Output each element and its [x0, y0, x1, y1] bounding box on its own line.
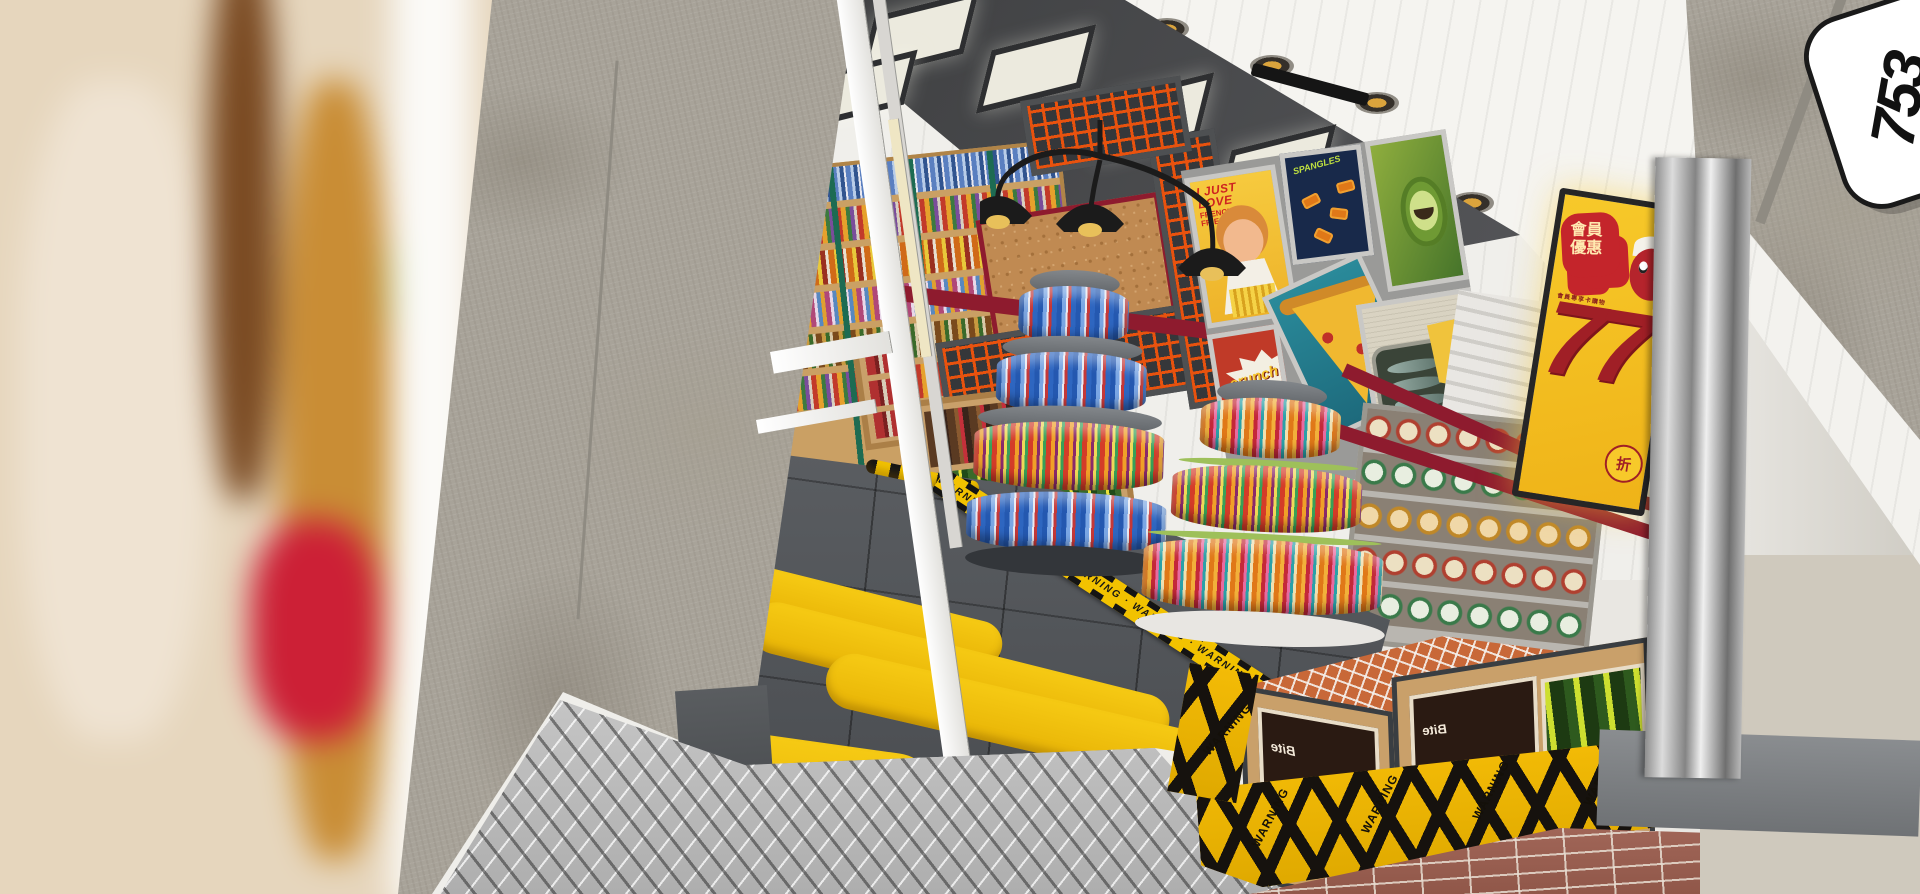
- chocolate-brand-label: Bite: [1422, 721, 1447, 738]
- lightbox-headline: 會員優惠: [1570, 222, 1607, 259]
- lightbox-discount-unit: 折: [1615, 452, 1633, 475]
- blur-blob: [280, 80, 390, 860]
- mascot-eye: [1638, 261, 1649, 274]
- can-tier: [973, 419, 1165, 494]
- stainless-column: [1645, 157, 1752, 779]
- can-tier: [1170, 461, 1363, 537]
- candy-piece: [1329, 207, 1348, 220]
- store-render-scene: I JUST LOVE FRENCHFRIES SPANGLES cr: [0, 0, 1920, 894]
- blur-blob: [20, 80, 210, 740]
- can-tier: [1199, 395, 1342, 462]
- red-cloud-badge: 會員優惠: [1560, 211, 1621, 278]
- lightbox-number: 77: [1535, 278, 1652, 411]
- chocolate-brand-label: Bite: [1271, 738, 1296, 759]
- blur-blob: [250, 520, 380, 740]
- candy-piece: [1336, 179, 1356, 194]
- curb-warning-text: WARNING: [1249, 785, 1292, 849]
- poster-candy: SPANGLES: [1279, 144, 1374, 265]
- candy-piece: [1313, 227, 1334, 245]
- storefront-logo-text: 753: [1857, 49, 1920, 151]
- curb-warning-text: WARNING: [1470, 758, 1513, 822]
- poster-title: SPANGLES: [1284, 148, 1341, 178]
- candy-piece: [1301, 192, 1322, 210]
- blur-blob: [208, 0, 278, 500]
- curb-warning-text: WARNING: [1358, 772, 1401, 836]
